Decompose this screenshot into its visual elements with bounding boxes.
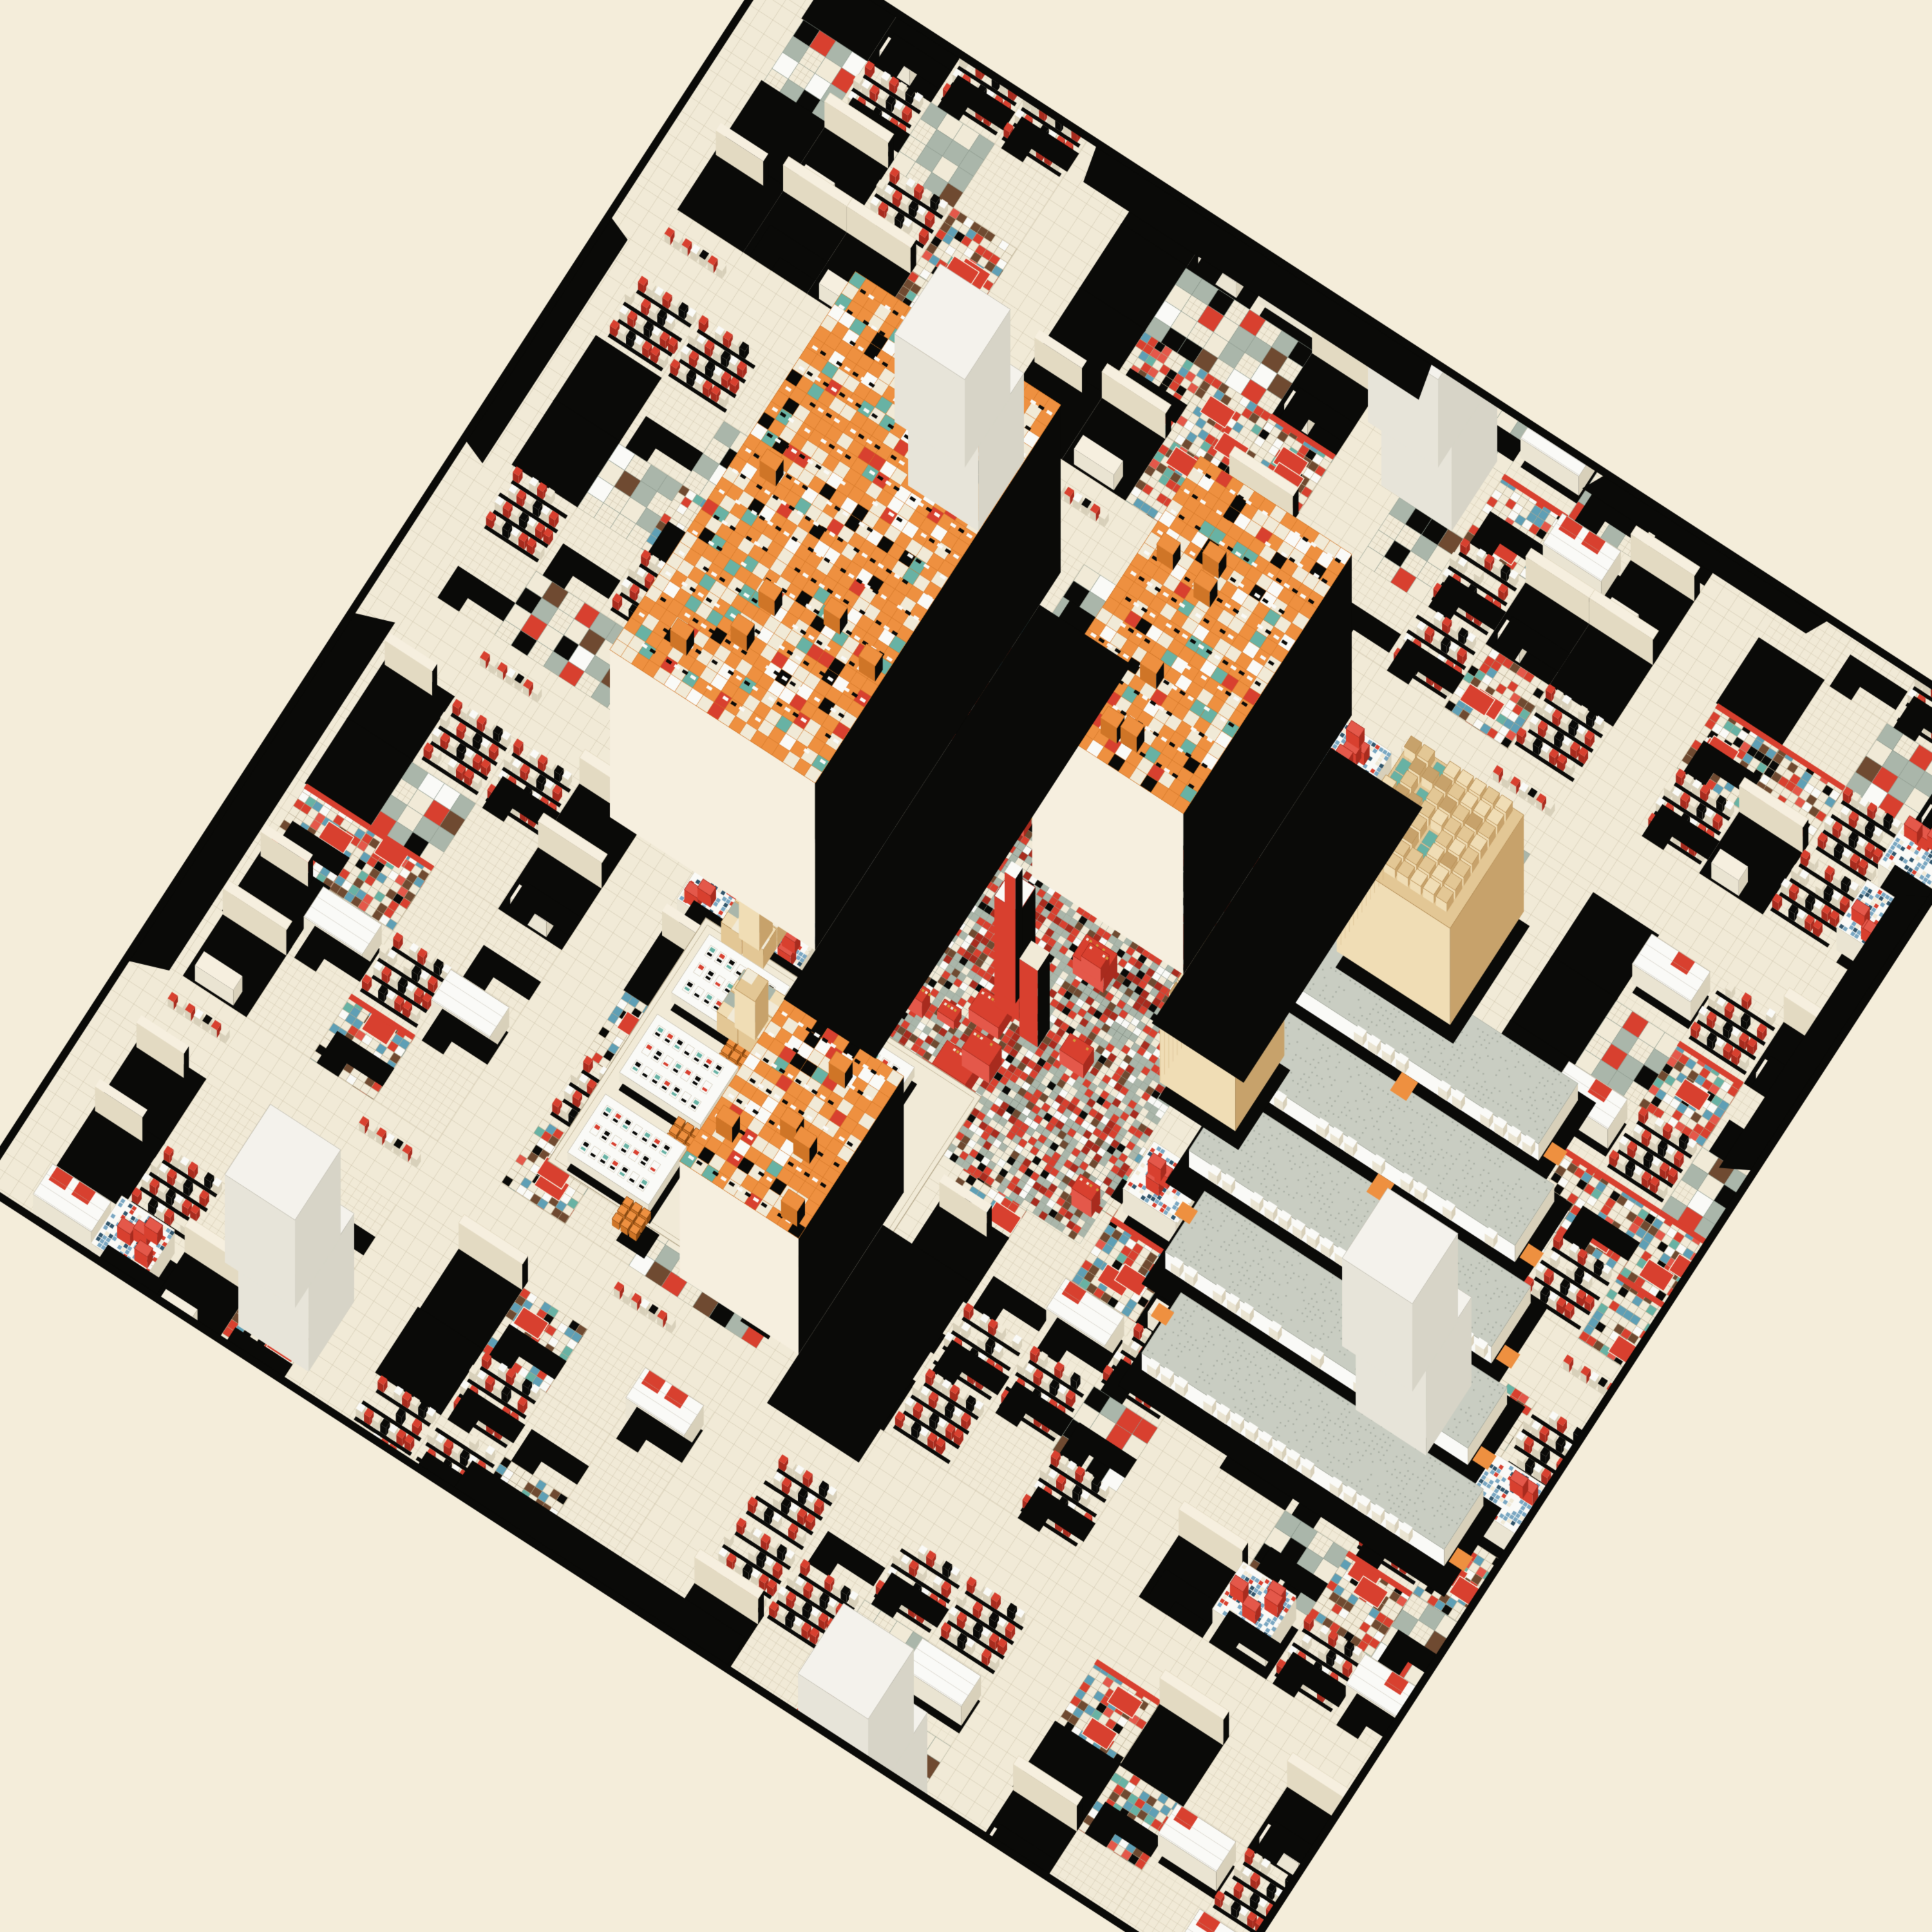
artwork-frame — [0, 0, 1932, 1932]
generative-city-canvas — [0, 0, 1932, 1932]
